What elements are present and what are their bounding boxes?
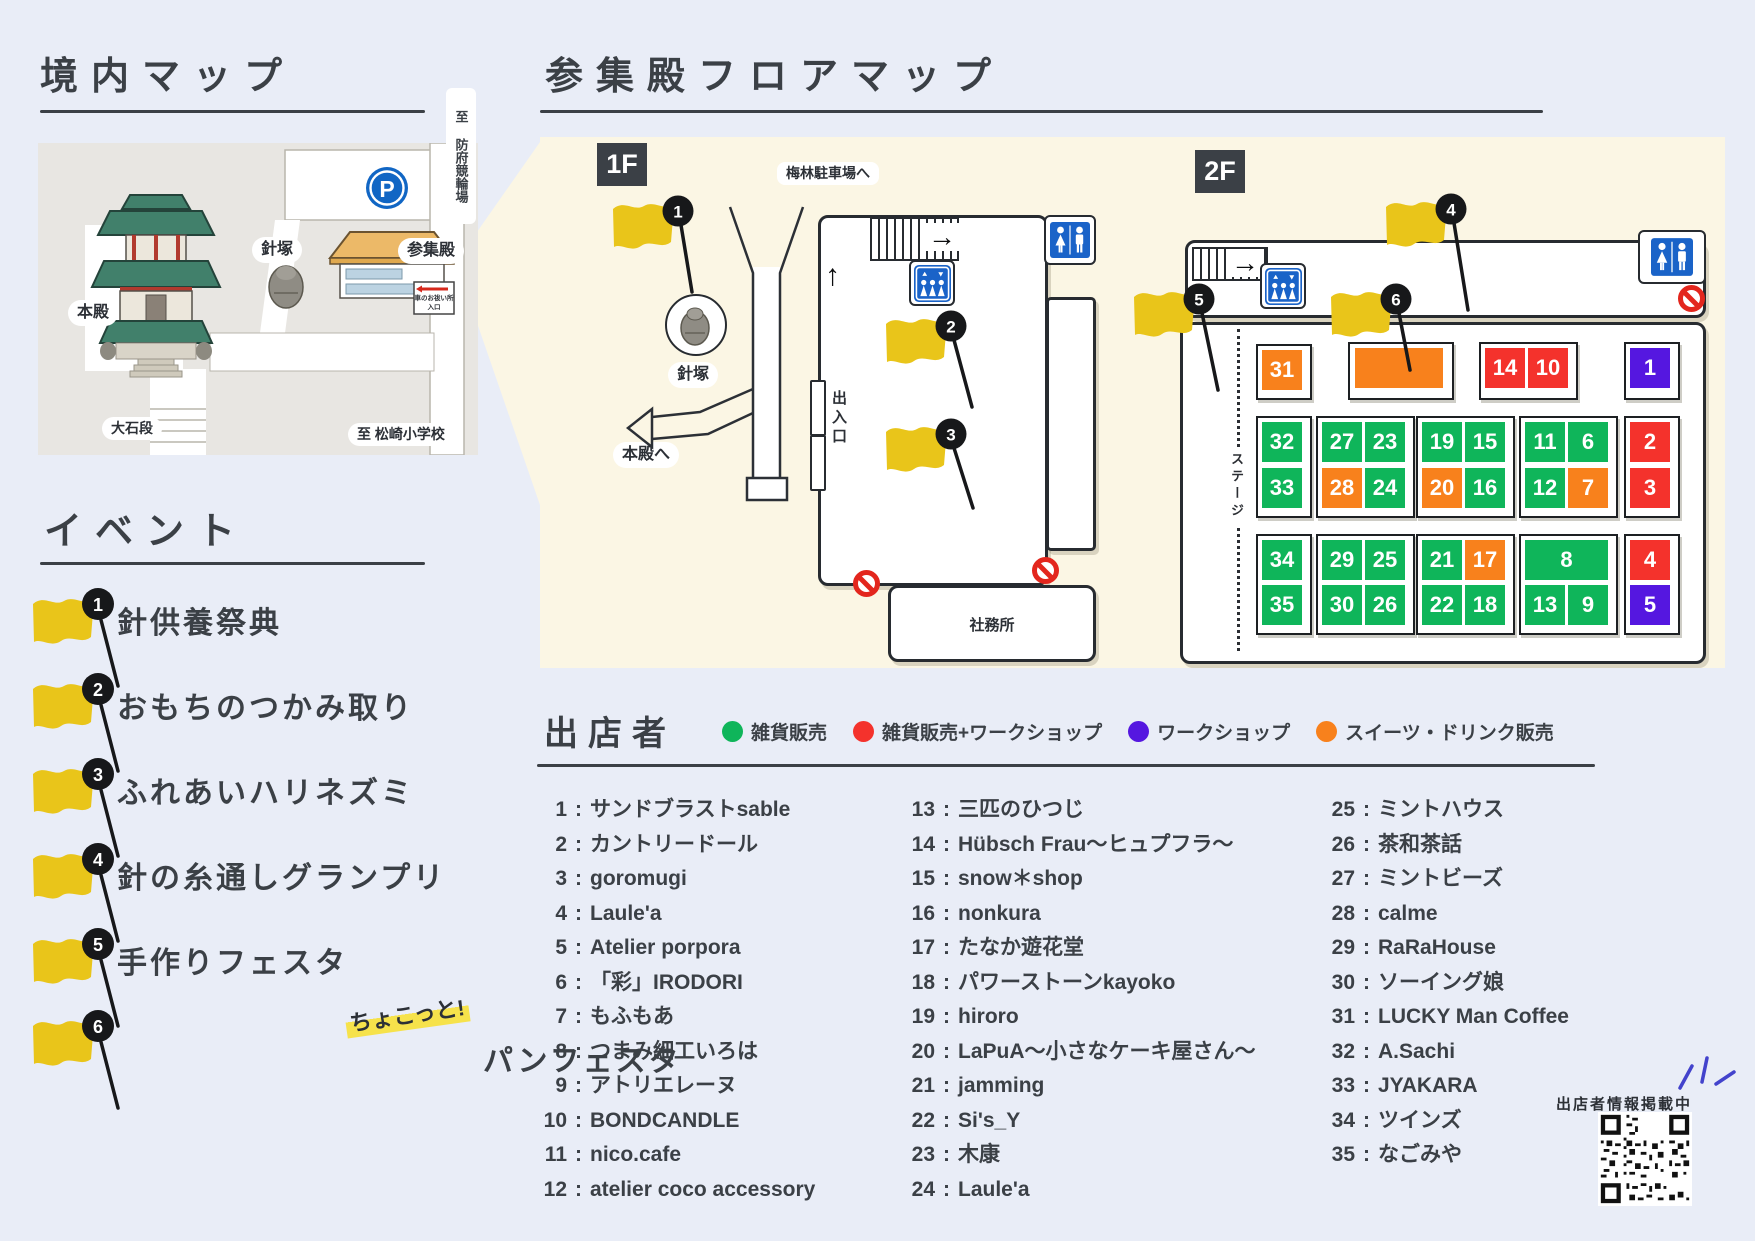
vendor-separator: : [1363,1000,1370,1035]
vendor-name: BONDCANDLE [590,1104,739,1139]
vendor-separator: : [943,1173,950,1208]
vendor-name: もふもあ [590,1000,674,1035]
vendor-separator: : [575,1104,582,1139]
event-label: 針供養祭典 [117,598,282,642]
vendor-number: 31 [1325,1000,1355,1035]
vendor-number: 8 [537,1035,567,1070]
vendor-item: 34 : ツインズ [1325,1104,1569,1139]
vendor-name: LaPuA～小さなケーキ屋さん～ [958,1035,1256,1070]
vendor-number: 17 [905,931,935,966]
vendor-number: 13 [905,793,935,828]
booth-34: 34 [1262,540,1302,580]
vendor-number: 16 [905,897,935,932]
vendor-name: 「彩」IRODORI [590,966,743,1001]
legend-item: スイーツ・ドリンク販売 [1316,718,1554,745]
vendor-name: サンドブラストsable [590,793,790,828]
vendor-number: 14 [905,828,935,863]
vendor-number: 32 [1325,1035,1355,1070]
booth-9: 9 [1568,585,1608,625]
vendor-number: 24 [905,1173,935,1208]
vendor-separator: : [1363,1104,1370,1139]
vendor-item: 2 : カントリードール [537,828,815,863]
event-list: 1 針供養祭典 2 おもちのつかみ取り 3 ふれあいハリネズミ 4 [0,0,530,1241]
vendor-number: 23 [905,1138,935,1173]
booth-11: 11 [1525,422,1565,462]
event-flyer-map: { "keidai": { "title": "境内マップ", "labels"… [0,0,1755,1241]
vendor-number: 18 [905,966,935,1001]
vendor-item: 26 : 茶和茶話 [1325,828,1569,863]
vendor-name: アトリエレーヌ [590,1069,737,1104]
vendor-item: 29 : RaRaHouse [1325,931,1569,966]
vendor-separator: : [943,793,950,828]
vendor-separator: : [575,828,582,863]
vendor-name: ミントビーズ [1378,862,1503,897]
vendor-separator: : [943,1104,950,1139]
vendor-separator: : [575,1035,582,1070]
booth-31: 31 [1262,350,1302,390]
booth-28: 28 [1322,468,1362,508]
vendor-separator: : [1363,931,1370,966]
booth-22: 22 [1422,585,1462,625]
vendor-item: 22 : Si's_Y [905,1104,1256,1139]
vendor-separator: : [943,966,950,1001]
vendor-name: Laule'a [958,1173,1030,1208]
vendor-number: 9 [537,1069,567,1104]
booth-7: 7 [1568,468,1608,508]
vendor-item: 31 : LUCKY Man Coffee [1325,1000,1569,1035]
vendor-separator: : [943,897,950,932]
svg-text:2: 2 [93,680,103,700]
booth-10: 10 [1528,348,1568,388]
vendor-item: 3 : goromugi [537,862,815,897]
legend-color-dot [1128,721,1149,742]
vendors-rule [537,764,1595,767]
booth-21: 21 [1422,540,1462,580]
vendor-item: 11 : nico.cafe [537,1138,815,1173]
vendor-number: 12 [537,1173,567,1208]
booth-12: 12 [1525,468,1565,508]
booth-layer: 3114101323327232824191520161161272334352… [540,137,1725,668]
booth-26: 26 [1365,585,1405,625]
vendor-separator: : [1363,793,1370,828]
vendor-number: 26 [1325,828,1355,863]
vendor-name: ソーイング娘 [1378,966,1504,1001]
vendor-separator: : [1363,1035,1370,1070]
event-item: 6 ちょこっと! パンフェスタ [0,1000,520,1100]
vendor-number: 2 [537,828,567,863]
legend-label: 雑貨販売+ワークショップ [882,718,1102,745]
vendor-name: 三匹のひつじ [958,793,1084,828]
vendor-separator: : [943,1000,950,1035]
qr-note: 出店者情報掲載中 [1556,1093,1692,1114]
legend-color-dot [722,721,743,742]
qr-code [1598,1112,1692,1206]
vendor-separator: : [575,793,582,828]
vendor-separator: : [575,1000,582,1035]
vendor-number: 22 [905,1104,935,1139]
vendor-name: RaRaHouse [1378,931,1496,966]
legend-item: ワークショップ [1128,718,1290,745]
legend-label: ワークショップ [1157,718,1290,745]
vendor-separator: : [575,966,582,1001]
booth-33: 33 [1262,468,1302,508]
vendor-item: 35 : なごみや [1325,1138,1569,1173]
vendor-separator: : [575,862,582,897]
vendor-name: Si's_Y [958,1104,1020,1139]
vendor-separator: : [1363,1069,1370,1104]
booth-29: 29 [1322,540,1362,580]
floormap-title-rule [540,110,1543,113]
svg-text:6: 6 [93,1017,103,1037]
vendor-item: 25 : ミントハウス [1325,793,1569,828]
floor-panel: 1F 梅林駐車場へ → ↑ 出入口 社務所 針塚 本殿へ 2F → ステージ 3… [540,137,1725,668]
vendor-name: A.Sachi [1378,1035,1455,1070]
sparkle-icon [1672,1050,1742,1096]
booth-19: 19 [1422,422,1462,462]
vendor-separator: : [943,828,950,863]
vendor-column-2: 13 : 三匹のひつじ 14 : Hübsch Frau～ヒュプフラ～ 15 :… [905,793,1256,1207]
booth-16: 16 [1465,468,1505,508]
vendor-item: 21 : jamming [905,1069,1256,1104]
booth-35: 35 [1262,585,1302,625]
vendor-name: atelier coco accessory [590,1173,815,1208]
vendor-item: 14 : Hübsch Frau～ヒュプフラ～ [905,828,1256,863]
vendors-title: 出店者 [544,706,676,755]
vendor-item: 6 : 「彩」IRODORI [537,966,815,1001]
svg-text:4: 4 [93,850,103,870]
booth-17: 17 [1465,540,1505,580]
vendor-name: 茶和茶話 [1378,828,1462,863]
vendor-separator: : [1363,862,1370,897]
vendor-number: 29 [1325,931,1355,966]
vendor-item: 15 : snow＊shop [905,862,1256,897]
vendor-item: 17 : たなか遊花堂 [905,931,1256,966]
booth-2: 2 [1630,422,1670,462]
booth-32: 32 [1262,422,1302,462]
booth-24: 24 [1365,468,1405,508]
vendor-item: 28 : calme [1325,897,1569,932]
vendor-item: 19 : hiroro [905,1000,1256,1035]
booth-3: 3 [1630,468,1670,508]
booth-6: 6 [1568,422,1608,462]
vendor-separator: : [575,1069,582,1104]
vendor-name: snow＊shop [958,862,1083,897]
legend-color-dot [1316,721,1337,742]
vendor-separator: : [1363,828,1370,863]
vendor-name: jamming [958,1069,1044,1104]
legend-item: 雑貨販売+ワークショップ [853,718,1102,745]
booth-14: 14 [1485,348,1525,388]
vendor-item: 33 : JYAKARA [1325,1069,1569,1104]
vendor-name: goromugi [590,862,687,897]
vendor-number: 35 [1325,1138,1355,1173]
vendor-name: たなか遊花堂 [958,931,1084,966]
booth-30: 30 [1322,585,1362,625]
vendor-separator: : [575,1138,582,1173]
vendor-name: Atelier porpora [590,931,741,966]
event-label: ふれあいハリネズミ [117,768,414,812]
legend-label: 雑貨販売 [751,718,827,745]
event-label: 針の糸通しグランプリ [117,853,446,897]
vendor-number: 25 [1325,793,1355,828]
vendor-number: 19 [905,1000,935,1035]
event-label: おもちのつかみ取り [117,683,414,727]
legend-color-dot [853,721,874,742]
booth-4: 4 [1630,540,1670,580]
vendor-number: 10 [537,1104,567,1139]
vendor-item: 4 : Laule'a [537,897,815,932]
vendor-item: 32 : A.Sachi [1325,1035,1569,1070]
vendor-number: 30 [1325,966,1355,1001]
vendor-column-1: 1 : サンドブラストsable 2 : カントリードール 3 : goromu… [537,793,815,1207]
vendor-name: なごみや [1378,1138,1462,1173]
vendor-name: nonkura [958,897,1041,932]
booth-unlabeled [1355,348,1443,388]
vendor-separator: : [1363,897,1370,932]
booth-8: 8 [1525,540,1608,580]
booth-5: 5 [1630,585,1670,625]
svg-text:3: 3 [93,765,103,785]
booth-23: 23 [1365,422,1405,462]
vendor-item: 9 : アトリエレーヌ [537,1069,815,1104]
vendor-item: 27 : ミントビーズ [1325,862,1569,897]
vendor-name: Hübsch Frau～ヒュプフラ～ [958,828,1233,863]
vendor-item: 18 : パワーストーンkayoko [905,966,1256,1001]
event-flag-icon: 6 [30,1000,136,1119]
vendor-item: 23 : 木康 [905,1138,1256,1173]
vendor-item: 20 : LaPuA～小さなケーキ屋さん～ [905,1035,1256,1070]
vendor-item: 30 : ソーイング娘 [1325,966,1569,1001]
event-label: 手作りフェスタ [117,938,348,982]
booth-1: 1 [1630,348,1670,388]
vendor-number: 7 [537,1000,567,1035]
vendor-separator: : [1363,1138,1370,1173]
floormap-title: 参集殿フロアマップ [545,45,1004,100]
vendor-number: 15 [905,862,935,897]
vendor-column-3: 25 : ミントハウス 26 : 茶和茶話 27 : ミントビーズ 28 : c… [1325,793,1569,1173]
vendor-separator: : [943,1069,950,1104]
vendor-separator: : [575,931,582,966]
vendor-name: hiroro [958,1000,1019,1035]
vendor-number: 28 [1325,897,1355,932]
booth-13: 13 [1525,585,1565,625]
vendor-number: 4 [537,897,567,932]
vendor-name: つまみ細工いろは [590,1035,758,1070]
vendors-legend: 雑貨販売 雑貨販売+ワークショップ ワークショップ スイーツ・ドリンク販売 [722,718,1554,745]
vendor-name: ツインズ [1378,1104,1462,1139]
vendor-item: 10 : BONDCANDLE [537,1104,815,1139]
legend-label: スイーツ・ドリンク販売 [1345,718,1554,745]
vendor-separator: : [943,862,950,897]
svg-text:5: 5 [93,935,103,955]
vendor-name: nico.cafe [590,1138,681,1173]
vendor-separator: : [575,897,582,932]
legend-item: 雑貨販売 [722,718,827,745]
vendor-name: カントリードール [590,828,758,863]
svg-text:1: 1 [93,595,103,615]
vendor-number: 5 [537,931,567,966]
vendor-separator: : [943,1138,950,1173]
vendor-number: 3 [537,862,567,897]
booth-25: 25 [1365,540,1405,580]
vendor-number: 34 [1325,1104,1355,1139]
vendor-separator: : [943,931,950,966]
vendor-name: ミントハウス [1378,793,1504,828]
vendor-separator: : [943,1035,950,1070]
vendor-item: 16 : nonkura [905,897,1256,932]
vendor-number: 1 [537,793,567,828]
booth-15: 15 [1465,422,1505,462]
vendor-name: Laule'a [590,897,662,932]
vendor-item: 12 : atelier coco accessory [537,1173,815,1208]
vendor-item: 1 : サンドブラストsable [537,793,815,828]
vendor-number: 33 [1325,1069,1355,1104]
vendor-name: LUCKY Man Coffee [1378,1000,1569,1035]
vendor-number: 20 [905,1035,935,1070]
vendor-item: 7 : もふもあ [537,1000,815,1035]
vendor-name: パワーストーンkayoko [958,966,1175,1001]
booth-20: 20 [1422,468,1462,508]
vendor-separator: : [1363,966,1370,1001]
vendor-name: JYAKARA [1378,1069,1478,1104]
vendor-item: 8 : つまみ細工いろは [537,1035,815,1070]
vendor-item: 24 : Laule'a [905,1173,1256,1208]
vendor-name: 木康 [958,1138,1000,1173]
vendor-separator: : [575,1173,582,1208]
vendor-item: 5 : Atelier porpora [537,931,815,966]
vendor-number: 6 [537,966,567,1001]
booth-18: 18 [1465,585,1505,625]
booth-27: 27 [1322,422,1362,462]
vendor-item: 13 : 三匹のひつじ [905,793,1256,828]
vendor-name: calme [1378,897,1438,932]
vendor-number: 11 [537,1138,567,1173]
vendor-number: 21 [905,1069,935,1104]
vendor-number: 27 [1325,862,1355,897]
